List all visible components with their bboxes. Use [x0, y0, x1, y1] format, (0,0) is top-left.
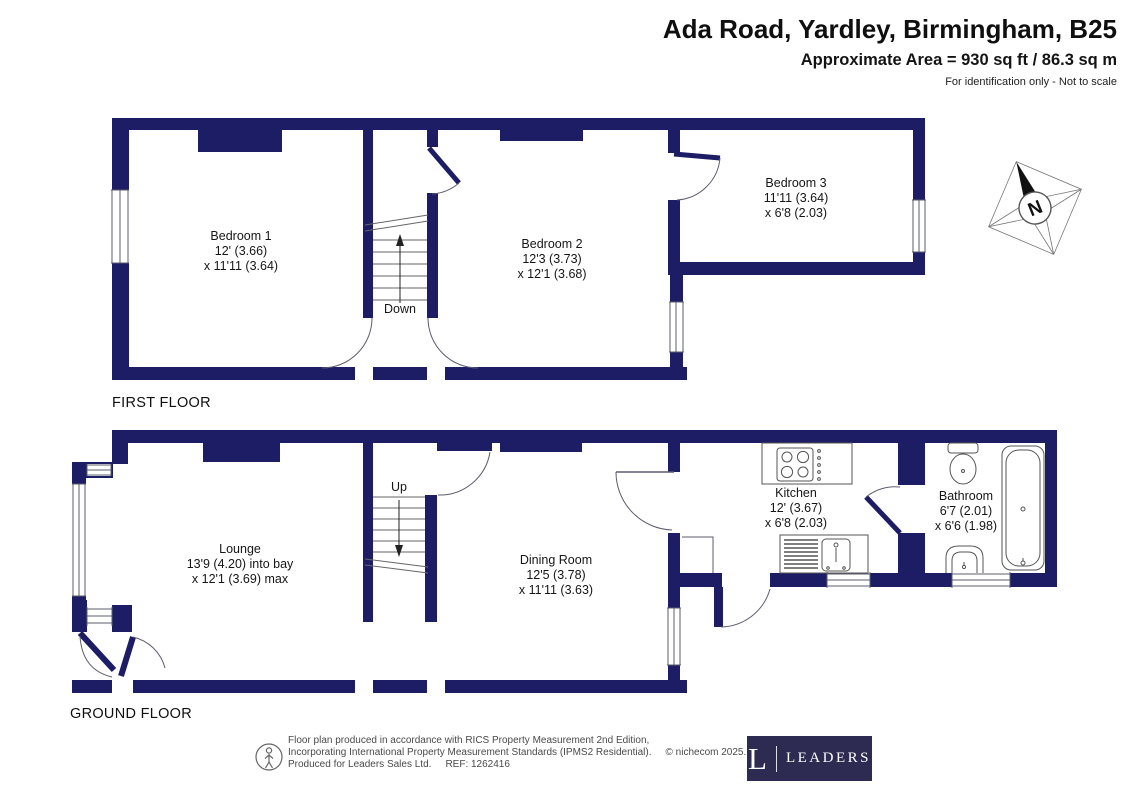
copyright: © nichecom 2025.: [666, 747, 747, 758]
porch-wall: [680, 573, 722, 587]
leaders-logo-letter: L: [748, 743, 767, 774]
front-door-leaf-right: [121, 637, 133, 676]
window-dining: [667, 608, 681, 665]
compass-icon: N: [970, 143, 1100, 273]
door-leaf-landing: [429, 148, 459, 183]
toilet-icon: [948, 443, 978, 484]
chimney-breast-dining: [500, 443, 582, 452]
first-floor-stairs: [365, 215, 428, 303]
stair-arrow-down: [395, 545, 403, 557]
hob-icon: [762, 443, 852, 484]
door-arc-bedroom2: [428, 318, 478, 368]
cupboard-outline: [682, 537, 713, 573]
ground-floor-stairs: [365, 497, 428, 573]
room-label-bathroom: Bathroom 6'7 (2.01) x 6'6 (1.98): [881, 489, 1051, 534]
door-leaf-bedroom3: [674, 154, 720, 158]
stairs-up-label: Up: [369, 480, 429, 494]
chimney-breast-bedroom1: [198, 130, 282, 152]
draining-board: [784, 540, 818, 568]
bay-bottom-stub: [112, 605, 132, 632]
room-label-bedroom3: Bedroom 3 11'11 (3.64) x 6'8 (2.03): [711, 176, 881, 221]
first-floor-label: FIRST FLOOR: [112, 395, 211, 411]
window-bay-front: [72, 484, 86, 596]
window-bedroom1: [111, 190, 129, 263]
window-kitchen: [827, 572, 870, 588]
room-label-lounge: Lounge 13'9 (4.20) into bay x 12'1 (3.69…: [155, 542, 325, 587]
leaders-logo-text: LEADERS: [786, 750, 871, 767]
door-arc-bedroom1: [322, 318, 372, 368]
footer-disclaimer: Floor plan produced in accordance with R…: [288, 735, 746, 770]
front-door-arc-right: [133, 637, 165, 668]
basin-icon: [946, 546, 983, 573]
door-leaf-hall: [437, 441, 492, 451]
door-arc-hall: [438, 452, 490, 495]
stairs-down-label: Down: [370, 302, 430, 316]
chimney-breast-lounge: [203, 443, 280, 462]
sink-icon: [780, 535, 868, 573]
rics-person-icon: [256, 744, 282, 770]
room-label-bedroom1: Bedroom 1 12' (3.66) x 11'11 (3.64): [156, 229, 326, 274]
footer-line3: Produced for Leaders Sales Ltd.REF: 1262…: [288, 759, 746, 771]
door-arc-dining: [616, 472, 672, 530]
leaders-logo-divider: [776, 746, 777, 772]
stair-break-lines: [365, 559, 428, 573]
stair-break-lines: [365, 215, 428, 231]
window-bathroom: [952, 572, 1010, 588]
door-arc-landing: [432, 183, 459, 194]
window-bedroom3: [912, 200, 926, 252]
window-bedroom2: [669, 302, 684, 352]
footer-line2: Incorporating International Property Mea…: [288, 747, 746, 759]
ground-floor-label: GROUND FLOOR: [70, 706, 192, 722]
floorplan-page: Ada Road, Yardley, Birmingham, B25 Appro…: [0, 0, 1131, 800]
reference-number: REF: 1262416: [445, 759, 510, 770]
room-label-dining: Dining Room 12'5 (3.78) x 11'11 (3.63): [471, 553, 641, 598]
door-arc-back-door: [721, 589, 770, 627]
window-bay-bottom: [87, 607, 112, 626]
room-label-kitchen: Kitchen 12' (3.67) x 6'8 (2.03): [711, 486, 881, 531]
bay-bottom-corner: [72, 600, 87, 632]
window-bay-top: [87, 464, 111, 476]
porch-stub: [714, 587, 723, 627]
leaders-logo: L LEADERS: [747, 736, 872, 781]
chimney-breast-bedroom2: [500, 130, 583, 141]
footer-line1: Floor plan produced in accordance with R…: [288, 735, 746, 747]
front-door-leaf-left: [80, 633, 114, 670]
room-label-bedroom2: Bedroom 2 12'3 (3.73) x 12'1 (3.68): [467, 237, 637, 282]
